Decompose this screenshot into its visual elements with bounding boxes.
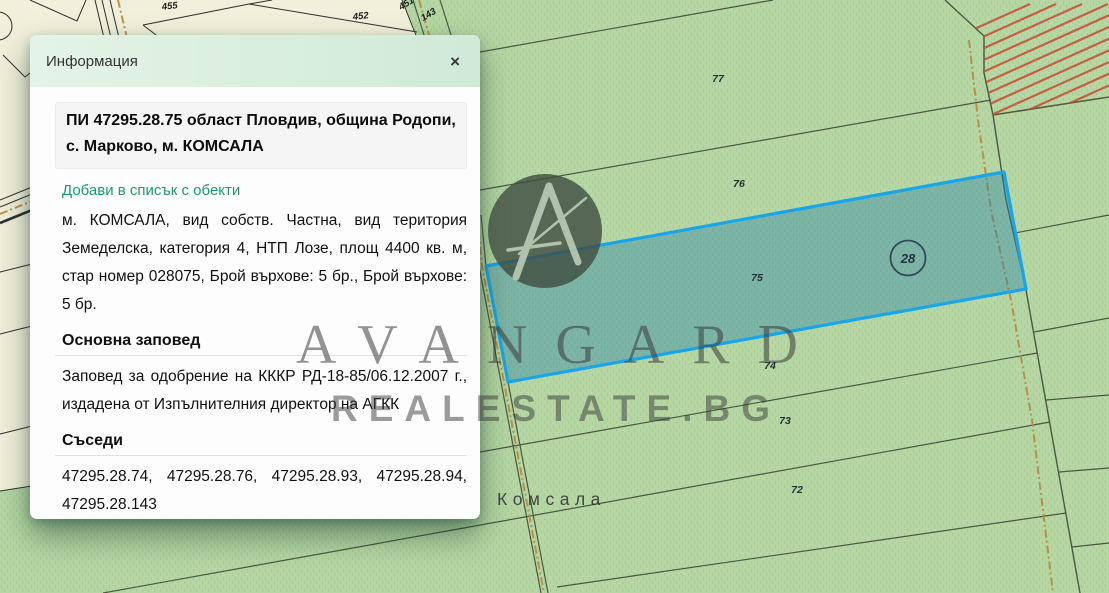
locality-label: Комсала [497, 489, 606, 509]
parcel-label-74: 74 [764, 360, 776, 372]
divider [55, 455, 467, 456]
parcel-label-73: 73 [779, 415, 791, 427]
main-order-text: Заповед за одобрение на КККР РД-18-85/06… [62, 363, 467, 419]
popup-title: Информация [46, 53, 138, 70]
kais-cadastral-map-screen: 28 77 76 75 74 73 72 455 452 451 143 Ком… [0, 0, 1109, 593]
parcel-label-72: 72 [791, 484, 803, 496]
close-icon[interactable]: × [446, 51, 464, 72]
divider [55, 355, 467, 356]
section-heading-main-order: Основна заповед [62, 332, 467, 350]
property-description: м. КОМСАЛА, вид собств. Частна, вид тери… [62, 207, 467, 319]
region-circle-number: 28 [900, 251, 916, 266]
info-popup-header: Информация × [30, 35, 480, 87]
neighbours-text: 47295.28.74, 47295.28.76, 47295.28.93, 4… [62, 463, 467, 519]
edge-label-455: 455 [160, 0, 179, 13]
add-to-object-list-link[interactable]: Добави в списък с обекти [62, 182, 240, 199]
section-heading-neighbours: Съседи [62, 432, 467, 450]
info-popup: Информация × ПИ 47295.28.75 област Пловд… [30, 35, 480, 519]
info-popup-body: ПИ 47295.28.75 област Пловдив, община Ро… [30, 87, 480, 519]
parcel-label-77: 77 [712, 73, 725, 85]
parcel-label-75: 75 [751, 272, 763, 284]
parcel-label-76: 76 [733, 178, 745, 190]
property-title: ПИ 47295.28.75 област Пловдив, община Ро… [55, 102, 467, 169]
edge-label-452: 452 [351, 10, 370, 23]
